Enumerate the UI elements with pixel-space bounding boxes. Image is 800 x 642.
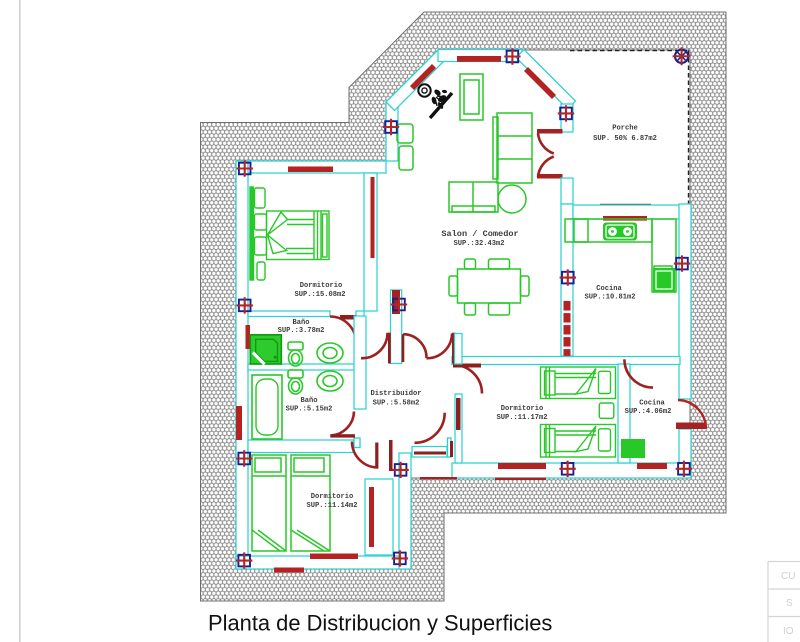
svg-text:SUP.:11.17m2: SUP.:11.17m2 [496, 414, 547, 422]
svg-text:Porche: Porche [612, 125, 638, 133]
svg-text:Cocina: Cocina [639, 400, 665, 408]
svg-text:SUP.:4.06m2: SUP.:4.06m2 [625, 408, 672, 416]
svg-text:S: S [786, 598, 793, 609]
svg-text:Baño: Baño [300, 397, 317, 405]
svg-text:SUP.:3.78m2: SUP.:3.78m2 [278, 327, 325, 335]
svg-text:Cocina: Cocina [596, 285, 622, 293]
svg-text:SUP.:10.81m2: SUP.:10.81m2 [584, 294, 635, 302]
svg-text:SUP.:15.08m2: SUP.:15.08m2 [294, 291, 345, 299]
svg-text:SUP.:32.43m2: SUP.:32.43m2 [453, 240, 504, 248]
svg-text:Baño: Baño [292, 319, 309, 327]
svg-text:SUP.:5.15m2: SUP.:5.15m2 [286, 406, 333, 414]
svg-text:Dormitorio: Dormitorio [311, 493, 354, 501]
svg-text:Dormitorio: Dormitorio [501, 405, 544, 413]
svg-text:CU: CU [781, 571, 795, 582]
svg-text:SUP. 50% 6.87m2: SUP. 50% 6.87m2 [593, 135, 657, 143]
svg-text:SUP.:11.14m2: SUP.:11.14m2 [306, 502, 357, 510]
svg-text:IO: IO [783, 626, 794, 637]
svg-text:SUP.:5.58m2: SUP.:5.58m2 [373, 400, 420, 408]
svg-text:Distribuidor: Distribuidor [370, 390, 421, 398]
svg-text:Dormitorio: Dormitorio [300, 282, 343, 290]
svg-text:Salon / Comedor: Salon / Comedor [441, 229, 518, 239]
svg-text:Planta de Distribucion y Super: Planta de Distribucion y Superficies [208, 611, 552, 636]
